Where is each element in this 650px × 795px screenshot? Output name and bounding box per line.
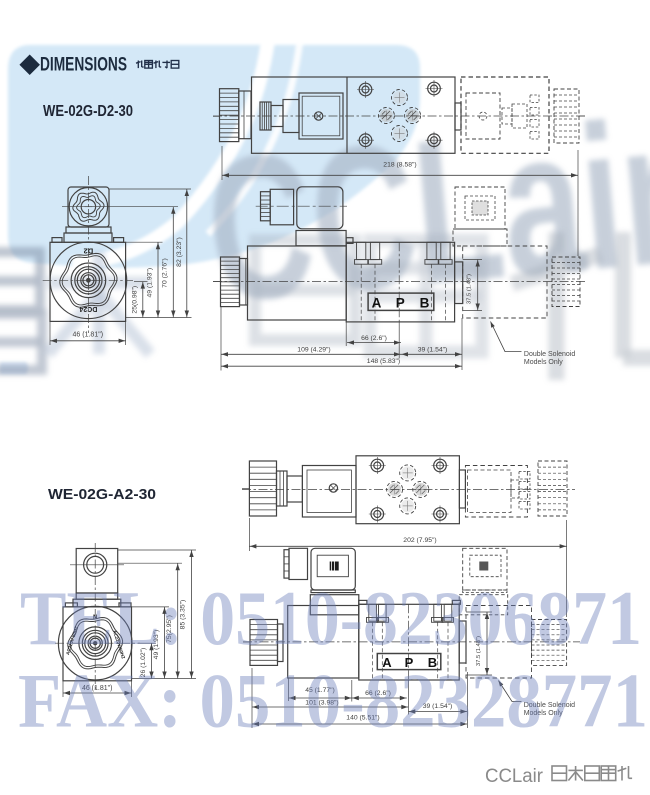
- svg-text:109 (4.29"): 109 (4.29"): [297, 346, 330, 353]
- svg-text:82 (3.23"): 82 (3.23"): [176, 237, 183, 267]
- svg-text:A: A: [372, 295, 382, 310]
- svg-text:66 (2.6"): 66 (2.6"): [361, 335, 387, 342]
- svg-text:148 (5.83"): 148 (5.83"): [367, 358, 400, 365]
- svg-text:49 (1.93"): 49 (1.93"): [146, 268, 153, 298]
- svg-text:P: P: [396, 295, 405, 310]
- svg-text:218 (8.58"): 218 (8.58"): [383, 162, 416, 169]
- svg-text:70 (2.76"): 70 (2.76"): [162, 258, 169, 288]
- svg-text:DIMENSIONS: DIMENSIONS: [40, 55, 127, 76]
- svg-text:Models Only: Models Only: [524, 359, 563, 366]
- svg-text:CCLair: CCLair: [485, 766, 544, 787]
- svg-text:46 (1.81"): 46 (1.81"): [73, 332, 104, 339]
- svg-text:B: B: [420, 295, 430, 310]
- svg-text:TEL: 0510-82306871: TEL: 0510-82306871: [20, 575, 642, 661]
- svg-text:WE-02G-A2-30: WE-02G-A2-30: [48, 486, 156, 503]
- svg-text:FAX: 0510-82328771: FAX: 0510-82328771: [18, 658, 648, 744]
- svg-text:WE-02G-D2-30: WE-02G-D2-30: [43, 103, 133, 120]
- svg-text:39 (1.54"): 39 (1.54"): [418, 346, 448, 353]
- svg-text:25(0.98"): 25(0.98"): [131, 286, 138, 314]
- svg-text:202 (7.95"): 202 (7.95"): [403, 537, 436, 544]
- svg-text:37.5 (1.48"): 37.5 (1.48"): [467, 274, 473, 304]
- svg-text:Double Solenoid: Double Solenoid: [524, 351, 575, 358]
